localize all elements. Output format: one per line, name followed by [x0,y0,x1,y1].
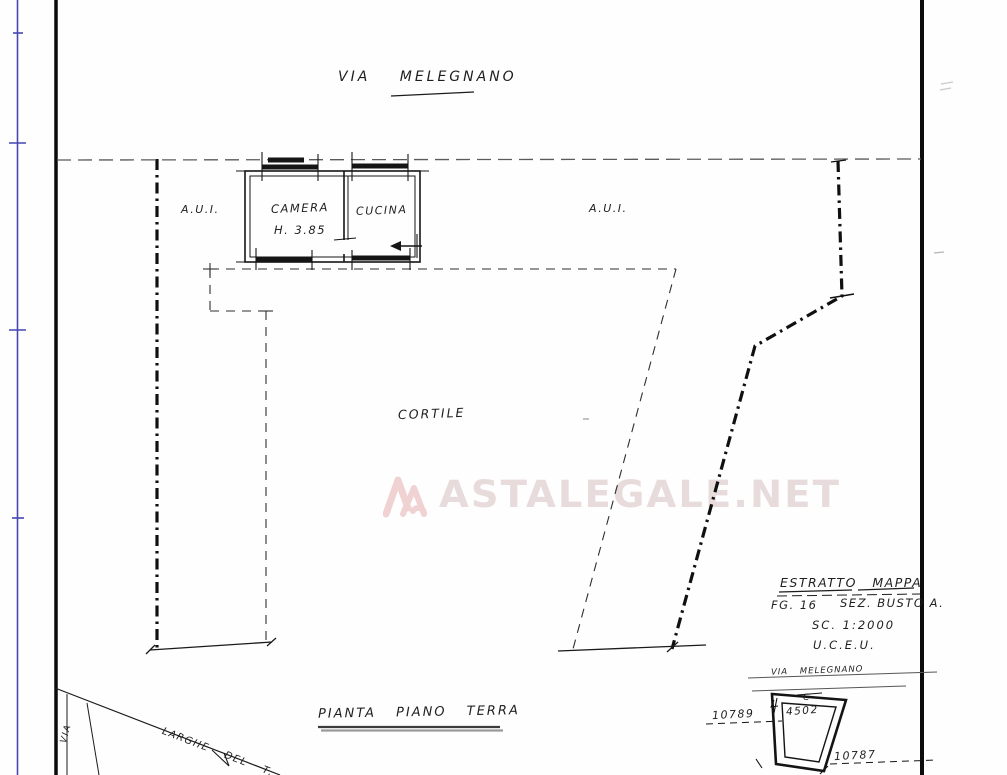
aui-label-right: A.U.I. [589,203,628,214]
internal-line-ticks [203,263,273,311]
courtyard-label: CORTILE [398,407,466,422]
internal-dashed-lines [210,269,676,649]
room-height-camera: H. 3.85 [274,225,326,237]
plan-linework [0,0,1007,775]
inset-parcel-letter: C [803,694,811,703]
map-extract-sheet: FG. 16 [771,600,817,612]
plan-title: PIANTA PIANO TERRA [318,704,520,721]
scanned-floor-plan-sheet: ASTALEGALE.NET [0,0,1007,775]
map-extract-scale: SC. 1:2000 [812,620,895,632]
room-label-camera: CAMERA [271,202,329,216]
bottom-boundary-lines [146,638,706,654]
road-edge-line [57,159,921,160]
street-label-underline [391,92,474,96]
street-label-top: VIA MELEGNANO [338,70,517,84]
map-extract-title: ESTRATTO MAPPA [780,577,922,590]
inset-parcel-bottom-right: 10787 [834,749,877,762]
map-extract-office: U.C.E.U. [813,640,876,652]
aui-label-left: A.U.I. [181,204,220,215]
room-label-cucina: CUCINA [356,204,408,217]
inset-map-lines [706,672,937,774]
inset-parcel-left: 10789 [712,708,755,721]
blue-margin-line [9,0,26,775]
sheet-borders [56,0,922,775]
scan-noise [583,82,953,419]
inset-parcel-number: 4502 [786,705,819,718]
plan-title-underline [318,727,503,731]
map-extract-section: SEZ. BUSTO A. [840,598,944,610]
